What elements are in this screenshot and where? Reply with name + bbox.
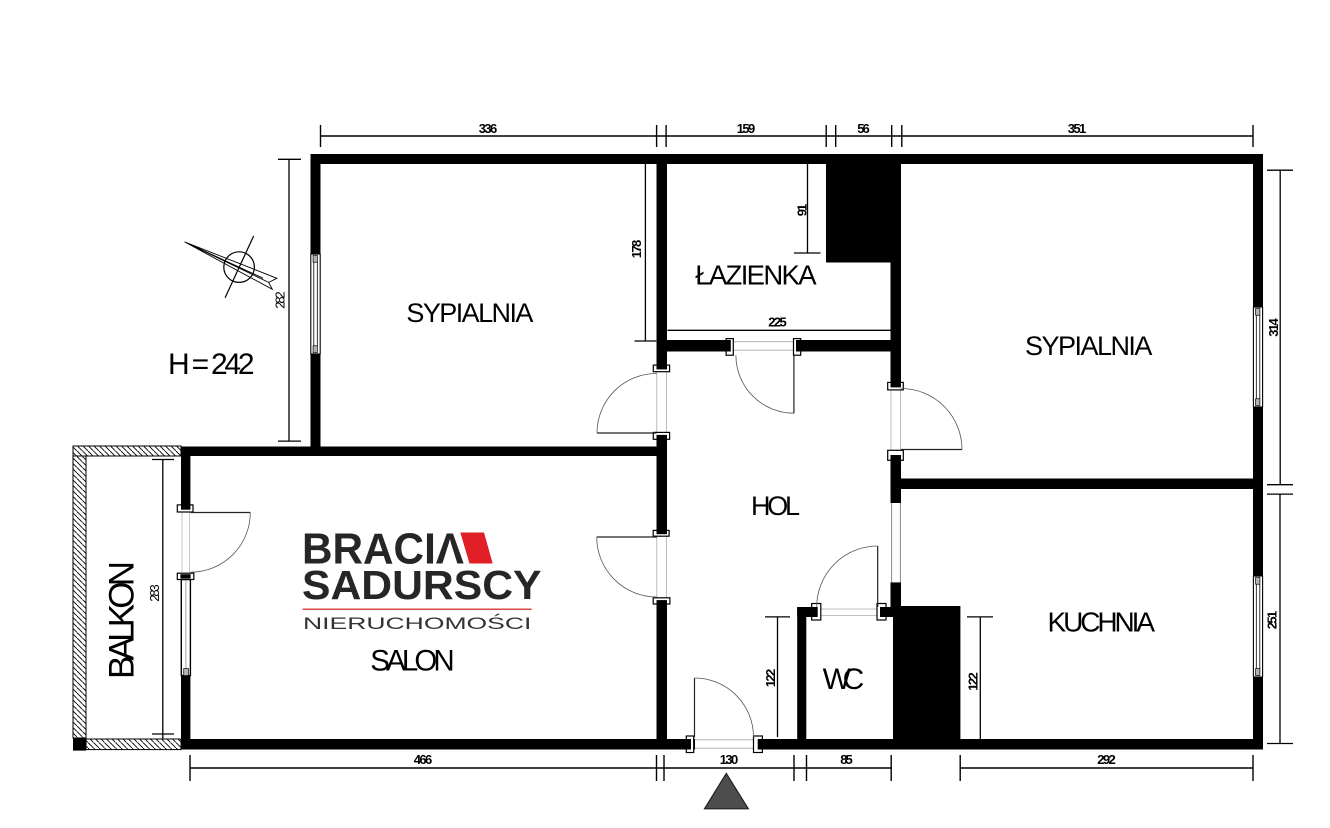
svg-text:SYPIALNIA: SYPIALNIA — [406, 298, 533, 328]
svg-text:KUCHNIA: KUCHNIA — [1048, 607, 1156, 638]
svg-text:SALON: SALON — [370, 645, 454, 678]
svg-text:SYPIALNIA: SYPIALNIA — [1025, 331, 1153, 361]
svg-text:251: 251 — [1265, 611, 1280, 630]
svg-text:314: 314 — [1266, 317, 1281, 336]
svg-text:336: 336 — [479, 121, 498, 136]
svg-text:91: 91 — [795, 204, 810, 217]
svg-text:292: 292 — [1097, 752, 1116, 767]
svg-text:282: 282 — [273, 291, 288, 309]
svg-text:ŁAZIENKA: ŁAZIENKA — [695, 259, 817, 290]
svg-text:130: 130 — [720, 752, 739, 767]
svg-text:122: 122 — [965, 672, 980, 691]
svg-text:351: 351 — [1068, 121, 1087, 136]
svg-text:HOL: HOL — [751, 491, 800, 521]
svg-text:283: 283 — [147, 584, 162, 602]
svg-text:H = 242: H = 242 — [168, 348, 254, 381]
svg-text:NIERUCHOMOŚCI: NIERUCHOMOŚCI — [303, 614, 531, 633]
svg-text:466: 466 — [414, 752, 433, 767]
svg-text:122: 122 — [763, 669, 778, 688]
svg-text:225: 225 — [768, 315, 787, 330]
svg-text:BALKON: BALKON — [103, 561, 142, 679]
svg-text:WC: WC — [823, 663, 865, 696]
svg-text:85: 85 — [840, 752, 853, 767]
svg-text:178: 178 — [629, 240, 644, 259]
svg-text:SADURSCY: SADURSCY — [302, 562, 542, 608]
svg-text:159: 159 — [737, 121, 756, 136]
svg-text:56: 56 — [857, 121, 870, 136]
